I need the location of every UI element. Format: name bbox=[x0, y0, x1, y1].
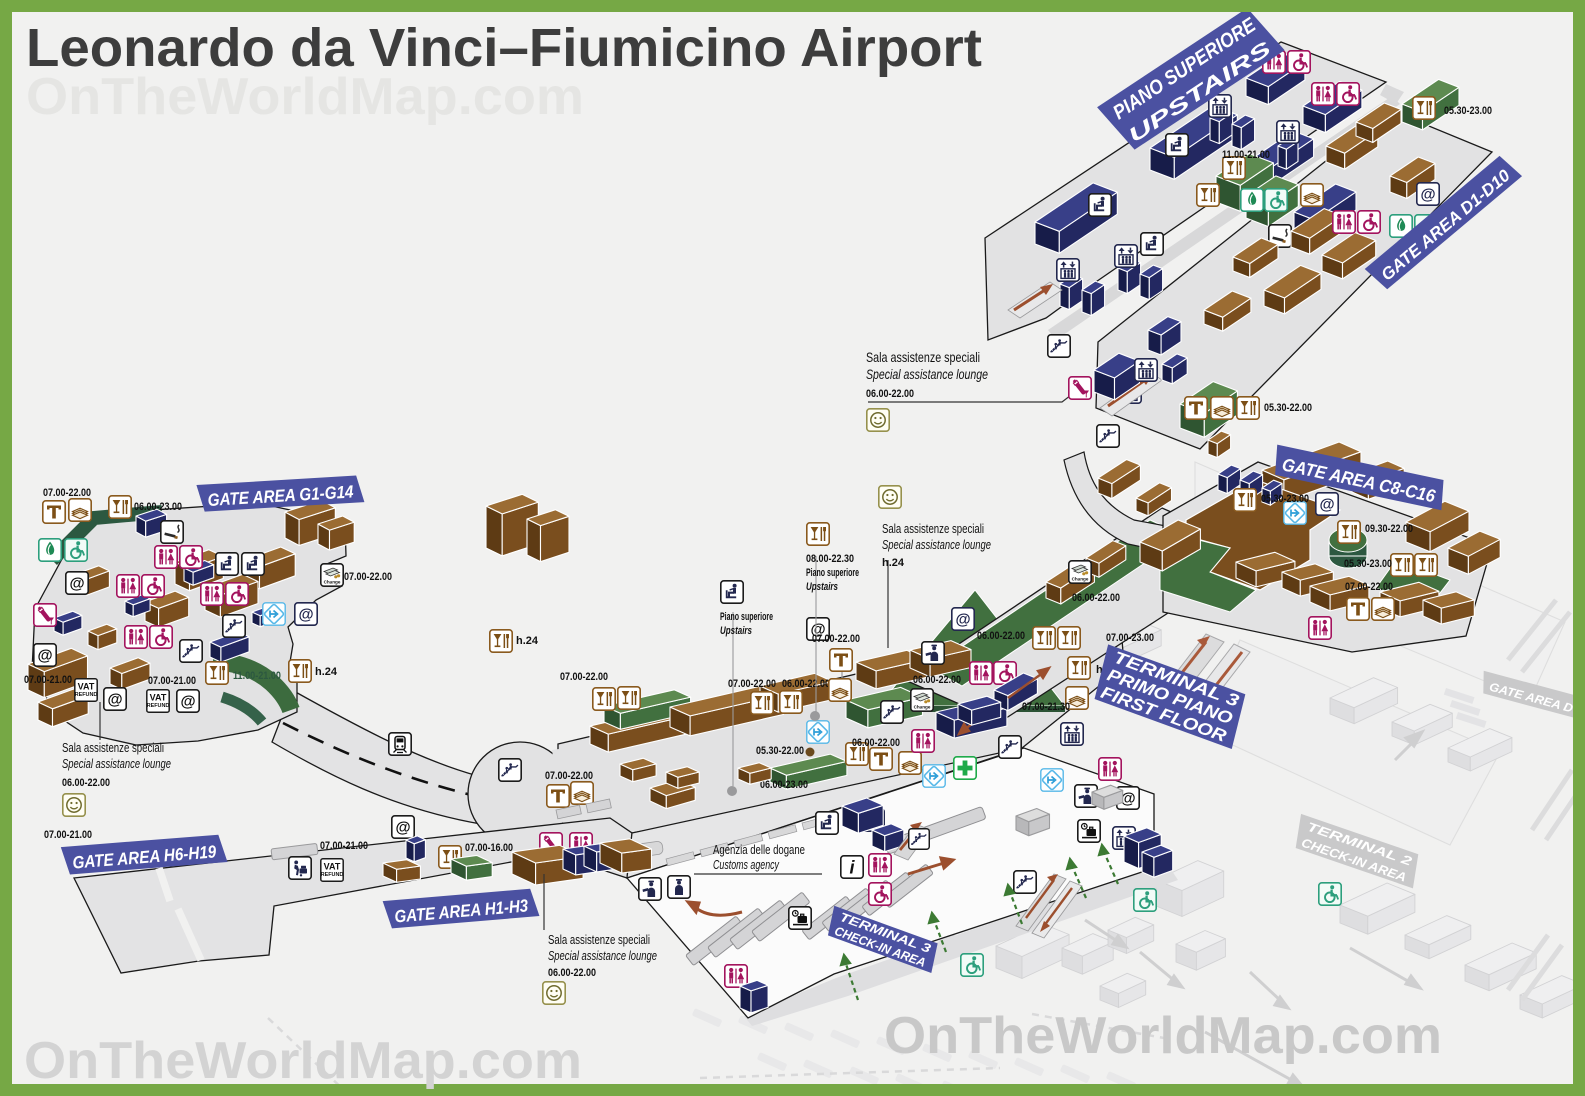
svg-text:06.00-22.00: 06.00-22.00 bbox=[548, 967, 596, 979]
svg-text:Leonardo da Vinci–Fiumicino Ai: Leonardo da Vinci–Fiumicino Airport bbox=[26, 18, 982, 78]
svg-text:07.00-21.00: 07.00-21.00 bbox=[24, 674, 72, 686]
svg-text:05.30-23.00: 05.30-23.00 bbox=[1261, 493, 1309, 505]
svg-text:Piano superiore: Piano superiore bbox=[720, 611, 773, 623]
svg-text:09.30-22.00: 09.30-22.00 bbox=[1365, 523, 1413, 535]
svg-text:08.00-22.30: 08.00-22.30 bbox=[806, 553, 854, 565]
svg-text:11.00-21.00: 11.00-21.00 bbox=[233, 670, 281, 682]
svg-text:05.30-23.00: 05.30-23.00 bbox=[1344, 558, 1392, 570]
svg-text:07.00-21.00: 07.00-21.00 bbox=[148, 675, 196, 687]
svg-text:Sala assistenze speciali: Sala assistenze speciali bbox=[866, 349, 980, 365]
svg-text:Special assistance lounge: Special assistance lounge bbox=[866, 366, 988, 382]
svg-text:Upstairs: Upstairs bbox=[720, 625, 752, 637]
svg-text:07.00-22.00: 07.00-22.00 bbox=[728, 678, 776, 690]
svg-text:07.00-22.00: 07.00-22.00 bbox=[1345, 581, 1393, 593]
svg-text:07.00-22.00: 07.00-22.00 bbox=[545, 770, 593, 782]
svg-text:06.00-22.00: 06.00-22.00 bbox=[852, 737, 900, 749]
svg-text:05.30-22.00: 05.30-22.00 bbox=[1264, 402, 1312, 414]
svg-text:Special assistance lounge: Special assistance lounge bbox=[882, 538, 991, 552]
svg-text:07.00-21.00: 07.00-21.00 bbox=[44, 829, 92, 841]
svg-text:Sala assistenze speciali: Sala assistenze speciali bbox=[62, 741, 164, 755]
svg-text:h.24: h.24 bbox=[315, 666, 338, 678]
svg-text:06.00-23.00: 06.00-23.00 bbox=[760, 779, 808, 791]
svg-text:Special assistance lounge: Special assistance lounge bbox=[548, 949, 657, 963]
svg-text:06.00-22.00: 06.00-22.00 bbox=[866, 388, 914, 400]
svg-text:11.00-21.00: 11.00-21.00 bbox=[1222, 149, 1270, 161]
svg-text:05.30-23.00: 05.30-23.00 bbox=[1444, 105, 1492, 117]
svg-text:06.00-22.00: 06.00-22.00 bbox=[782, 678, 830, 690]
svg-text:07.00-22.00: 07.00-22.00 bbox=[43, 487, 91, 499]
svg-text:Special assistance lounge: Special assistance lounge bbox=[62, 757, 171, 771]
svg-text:Upstairs: Upstairs bbox=[806, 581, 838, 593]
svg-text:06.00-22.00: 06.00-22.00 bbox=[913, 674, 961, 686]
svg-text:07.00-23.00: 07.00-23.00 bbox=[1106, 632, 1154, 644]
svg-text:07.00-21.00: 07.00-21.00 bbox=[320, 840, 368, 852]
svg-text:Sala assistenze speciali: Sala assistenze speciali bbox=[882, 522, 984, 536]
svg-text:OnTheWorldMap.com: OnTheWorldMap.com bbox=[884, 1007, 1442, 1065]
svg-text:OnTheWorldMap.com: OnTheWorldMap.com bbox=[24, 1032, 582, 1090]
svg-text:07.00-16.00: 07.00-16.00 bbox=[465, 842, 513, 854]
svg-text:06.00-22.00: 06.00-22.00 bbox=[62, 777, 110, 789]
svg-text:05.30-22.00: 05.30-22.00 bbox=[756, 745, 804, 757]
svg-text:Sala assistenze speciali: Sala assistenze speciali bbox=[548, 933, 650, 947]
svg-text:06.00-22.00: 06.00-22.00 bbox=[1072, 592, 1120, 604]
svg-text:Piano superiore: Piano superiore bbox=[806, 567, 859, 579]
svg-text:06.00-22.00: 06.00-22.00 bbox=[977, 630, 1025, 642]
svg-text:06.00-23.00: 06.00-23.00 bbox=[134, 501, 182, 513]
svg-text:Agenzia delle dogane: Agenzia delle dogane bbox=[713, 843, 805, 857]
svg-text:07.00-21.30: 07.00-21.30 bbox=[1022, 701, 1070, 713]
svg-text:Customs agency: Customs agency bbox=[713, 858, 780, 872]
svg-text:h.24: h.24 bbox=[516, 635, 539, 647]
svg-text:07.00-22.00: 07.00-22.00 bbox=[560, 671, 608, 683]
svg-text:h.24: h.24 bbox=[882, 557, 905, 569]
svg-text:07.00-22.00: 07.00-22.00 bbox=[344, 571, 392, 583]
svg-text:07.00-22.00: 07.00-22.00 bbox=[812, 633, 860, 645]
